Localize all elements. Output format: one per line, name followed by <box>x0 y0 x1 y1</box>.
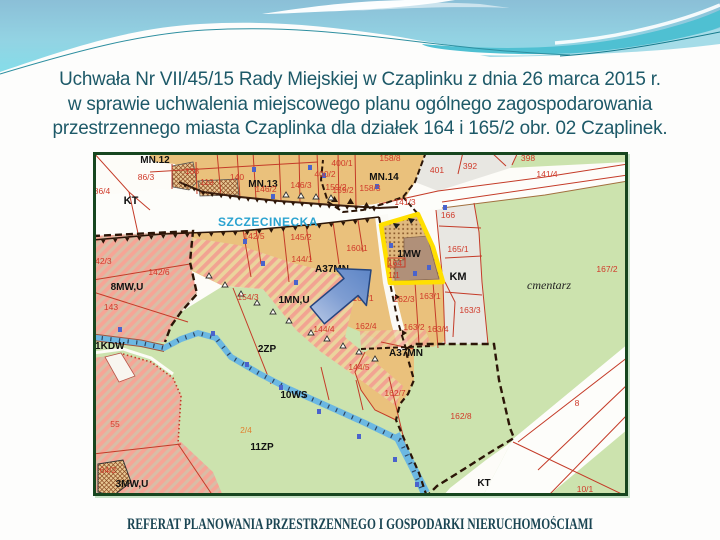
svg-text:1/1: 1/1 <box>388 270 400 280</box>
svg-text:141/3: 141/3 <box>394 197 416 207</box>
svg-text:KM: KM <box>449 271 466 283</box>
svg-text:119: 119 <box>200 177 214 187</box>
svg-text:163/1: 163/1 <box>419 291 441 301</box>
svg-text:140: 140 <box>230 172 244 182</box>
svg-text:SZCZECINECKA: SZCZECINECKA <box>218 215 318 229</box>
svg-text:162/7: 162/7 <box>384 388 406 398</box>
svg-text:162/4: 162/4 <box>355 321 377 331</box>
svg-text:KT: KT <box>477 478 490 489</box>
svg-text:158/3: 158/3 <box>359 183 381 193</box>
svg-text:164: 164 <box>388 258 402 268</box>
svg-text:392: 392 <box>463 161 477 171</box>
svg-text:KT: KT <box>124 195 139 207</box>
svg-text:138: 138 <box>185 166 199 176</box>
svg-text:144/5: 144/5 <box>348 362 370 372</box>
svg-text:146/3: 146/3 <box>290 180 312 190</box>
svg-text:8: 8 <box>575 398 580 408</box>
svg-text:142/5: 142/5 <box>243 231 265 241</box>
svg-text:55: 55 <box>110 419 120 429</box>
svg-text:8MW,U: 8MW,U <box>111 282 144 293</box>
svg-text:159/2: 159/2 <box>332 185 354 195</box>
svg-text:86/3: 86/3 <box>138 172 155 182</box>
svg-text:144/4: 144/4 <box>313 324 335 334</box>
svg-text:01KDW: 01KDW <box>93 341 125 352</box>
svg-text:1MN,U: 1MN,U <box>278 295 309 306</box>
svg-text:162/8: 162/8 <box>450 411 472 421</box>
svg-text:163/3: 163/3 <box>459 305 481 315</box>
svg-text:154/3: 154/3 <box>237 292 259 302</box>
svg-text:166: 166 <box>441 210 455 220</box>
svg-text:400/2: 400/2 <box>314 169 336 179</box>
svg-text:160/1: 160/1 <box>346 243 368 253</box>
svg-text:141/4: 141/4 <box>536 169 558 179</box>
svg-text:146/2: 146/2 <box>255 184 277 194</box>
svg-text:10WS: 10WS <box>280 390 308 401</box>
svg-text:11ZP: 11ZP <box>250 442 274 453</box>
svg-text:10/1: 10/1 <box>577 484 594 494</box>
svg-text:145/2: 145/2 <box>290 232 312 242</box>
svg-text:163/2: 163/2 <box>403 322 425 332</box>
svg-text:cmentarz: cmentarz <box>527 278 571 292</box>
svg-text:64/2: 64/2 <box>100 465 117 475</box>
svg-text:2/4: 2/4 <box>240 425 252 435</box>
svg-text:400/1: 400/1 <box>331 158 353 168</box>
svg-text:167/2: 167/2 <box>596 264 618 274</box>
svg-text:401: 401 <box>430 165 444 175</box>
svg-text:A37MN: A37MN <box>389 348 423 359</box>
svg-text:2ZP: 2ZP <box>258 344 277 355</box>
svg-text:143: 143 <box>104 302 118 312</box>
svg-text:163/4: 163/4 <box>427 324 449 334</box>
svg-text:144/1: 144/1 <box>291 254 313 264</box>
svg-text:3MW,U: 3MW,U <box>116 479 149 490</box>
svg-text:MN.12: MN.12 <box>140 155 170 166</box>
svg-text:86/4: 86/4 <box>94 186 111 196</box>
svg-text:162/3: 162/3 <box>393 294 415 304</box>
svg-text:MN.14: MN.14 <box>369 172 399 183</box>
svg-text:165/1: 165/1 <box>447 244 469 254</box>
svg-text:142/6: 142/6 <box>148 267 170 277</box>
